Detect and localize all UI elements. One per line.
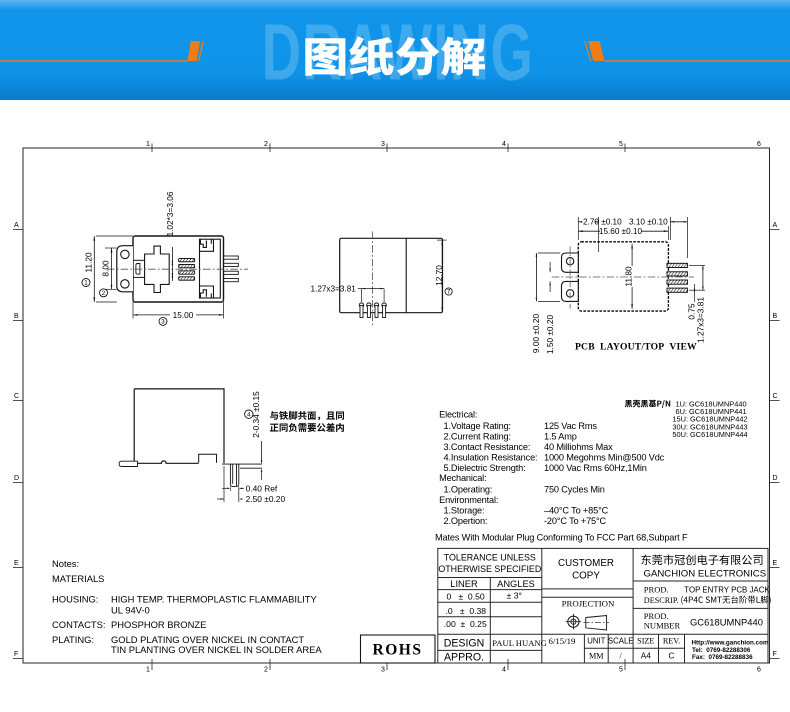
svg-text:PCB LAYOUT/TOP VIEW: PCB LAYOUT/TOP VIEW: [575, 342, 697, 353]
svg-text:NUMBER: NUMBER: [644, 621, 681, 631]
svg-text:E: E: [773, 560, 778, 567]
svg-text:PLATING:: PLATING:: [52, 634, 94, 645]
svg-text:-20°C To +75°C: -20°C To +75°C: [544, 516, 607, 526]
svg-text:TOP ENTRY PCB JACK: TOP ENTRY PCB JACK: [684, 585, 770, 594]
svg-text:1000 Vac Rms 60Hz,1Min: 1000 Vac Rms 60Hz,1Min: [544, 463, 647, 473]
svg-text:GC618UMNP440: GC618UMNP440: [690, 617, 763, 628]
svg-text:1.Storage:: 1.Storage:: [444, 506, 485, 516]
svg-text:0.40 Ref: 0.40 Ref: [246, 483, 278, 493]
svg-text:COPY: COPY: [572, 570, 600, 581]
svg-text:F: F: [773, 651, 777, 658]
svg-text:Mates With Modular Plug Confor: Mates With Modular Plug Conforming To FC…: [435, 533, 688, 543]
svg-text:1.50 ±0.20: 1.50 ±0.20: [545, 315, 555, 355]
svg-text:2: 2: [102, 290, 106, 297]
svg-text:2.Opertion:: 2.Opertion:: [444, 516, 488, 526]
svg-text:–40°C To +85°C: –40°C To +85°C: [544, 506, 609, 516]
svg-text:CUSTOMER: CUSTOMER: [558, 558, 614, 569]
svg-text:Electrical:: Electrical:: [439, 409, 477, 419]
svg-text:PHOSPHOR BRONZE: PHOSPHOR BRONZE: [111, 619, 206, 630]
svg-text:C: C: [14, 393, 19, 400]
svg-text:Fax: 0769-82288836: Fax: 0769-82288836: [692, 654, 753, 661]
svg-text:MATERIALS: MATERIALS: [52, 573, 104, 584]
svg-text:/: /: [620, 651, 623, 660]
svg-text:1.02*3=3.06: 1.02*3=3.06: [165, 191, 175, 236]
svg-text:5: 5: [619, 667, 623, 674]
svg-text:DESIGN: DESIGN: [444, 637, 485, 649]
svg-text:D: D: [773, 475, 778, 482]
svg-text:UL 94V-0: UL 94V-0: [111, 605, 150, 616]
svg-text:SCALE: SCALE: [608, 637, 634, 646]
svg-text:1: 1: [146, 667, 150, 674]
svg-text:6: 6: [757, 141, 761, 148]
svg-text:D: D: [14, 475, 19, 482]
svg-text:1.5 Amp: 1.5 Amp: [544, 432, 577, 442]
svg-text:TIN PLANTING OVER NICKEL IN SO: TIN PLANTING OVER NICKEL IN SOLDER AREA: [111, 644, 322, 655]
svg-text:PROJECTION: PROJECTION: [562, 598, 615, 608]
svg-text:B: B: [14, 313, 19, 320]
svg-text:Http://www.ganchion.com: Http://www.ganchion.com: [692, 640, 769, 647]
svg-text:REV.: REV.: [663, 637, 680, 646]
svg-text:4: 4: [502, 141, 506, 148]
svg-text:PROD.: PROD.: [644, 585, 669, 595]
svg-text:F: F: [14, 651, 18, 658]
svg-text:1.27x3=3.81: 1.27x3=3.81: [695, 297, 705, 343]
svg-text:8.00: 8.00: [100, 260, 110, 277]
svg-text:11.20: 11.20: [83, 252, 93, 273]
svg-text:PROD.: PROD.: [644, 611, 669, 621]
svg-text:2.Current Rating:: 2.Current Rating:: [444, 432, 511, 442]
svg-text:1.Operating:: 1.Operating:: [444, 485, 493, 495]
svg-text:40 Milliohms Max: 40 Milliohms Max: [544, 442, 613, 452]
svg-text:2: 2: [264, 141, 268, 148]
svg-text:Notes:: Notes:: [52, 558, 79, 569]
svg-text:.0 ± 0.38: .0 ± 0.38: [446, 606, 487, 616]
svg-text:3.10 ±0.10: 3.10 ±0.10: [629, 218, 668, 227]
svg-text:6/15/19: 6/15/19: [549, 636, 576, 646]
svg-text:5: 5: [619, 141, 623, 148]
svg-text:12.70: 12.70: [434, 265, 444, 286]
svg-text:HOUSING:: HOUSING:: [52, 594, 98, 605]
svg-text:DESCRIP.: DESCRIP.: [644, 596, 679, 605]
svg-text:5.Dielectric Strength:: 5.Dielectric Strength:: [444, 463, 526, 473]
svg-text:Mechanical:: Mechanical:: [439, 473, 486, 483]
svg-text:15.60 ±0.10: 15.60 ±0.10: [599, 227, 643, 236]
svg-text:11.80: 11.80: [624, 266, 634, 287]
svg-text:15.00: 15.00: [173, 310, 194, 320]
svg-text:CONTACTS:: CONTACTS:: [52, 619, 105, 630]
svg-text:OTHERWISE SPECIFIED: OTHERWISE SPECIFIED: [438, 564, 541, 574]
svg-text:ANGLES: ANGLES: [497, 579, 535, 589]
svg-text:A: A: [773, 222, 778, 229]
svg-text:A: A: [14, 222, 19, 229]
svg-text:9.00 ±0.20: 9.00 ±0.20: [531, 314, 541, 354]
svg-text:SIZE: SIZE: [637, 637, 654, 646]
svg-text:1.27x3=3.81: 1.27x3=3.81: [311, 285, 357, 294]
svg-text:1.Voltage Rating:: 1.Voltage Rating:: [444, 421, 511, 431]
svg-text:Environmental:: Environmental:: [439, 495, 498, 505]
svg-text:GANCHION ELECTRONICS: GANCHION ELECTRONICS: [644, 569, 767, 580]
svg-text:MM: MM: [589, 651, 604, 660]
svg-text:50U: GC618UMNP444: 50U: GC618UMNP444: [672, 430, 747, 439]
svg-text:ROHS: ROHS: [373, 642, 423, 659]
svg-text:LINER: LINER: [450, 579, 478, 589]
svg-text:1: 1: [84, 280, 88, 287]
svg-text:6: 6: [757, 667, 761, 674]
svg-text:B: B: [773, 313, 778, 320]
svg-text:4: 4: [247, 411, 251, 418]
svg-text:3: 3: [161, 319, 165, 326]
svg-text:TOLERANCE UNLESS: TOLERANCE UNLESS: [444, 553, 536, 563]
svg-text:3.Contact Resistance:: 3.Contact Resistance:: [444, 442, 531, 452]
svg-text:UNIT: UNIT: [587, 637, 605, 646]
svg-text:7: 7: [447, 289, 451, 296]
svg-text:1000 Megohms Min@500 Vdc: 1000 Megohms Min@500 Vdc: [544, 453, 665, 463]
svg-text:3: 3: [381, 141, 385, 148]
svg-text:2: 2: [264, 667, 268, 674]
svg-text:E: E: [14, 560, 19, 567]
svg-text:C: C: [773, 393, 778, 400]
svg-text:APPRO.: APPRO.: [444, 651, 484, 663]
svg-text:125 Vac Rms: 125 Vac Rms: [544, 421, 597, 431]
svg-text:HIGH TEMP. THERMOPLASTIC FLAMM: HIGH TEMP. THERMOPLASTIC FLAMMABILITY: [111, 594, 318, 605]
svg-text:750 Cycles Min: 750 Cycles Min: [544, 485, 605, 495]
svg-text:C: C: [669, 651, 675, 660]
svg-text:4: 4: [502, 667, 506, 674]
svg-text:PAUL HUANG: PAUL HUANG: [492, 638, 547, 648]
svg-text:.00 ± 0.25: .00 ± 0.25: [444, 619, 487, 629]
svg-text:2.50 ±0.20: 2.50 ±0.20: [246, 494, 286, 504]
svg-text:± 3°: ± 3°: [507, 591, 522, 601]
svg-text:A4: A4: [641, 651, 651, 660]
svg-text:1: 1: [146, 141, 150, 148]
svg-text:2.70 ±0.10: 2.70 ±0.10: [583, 218, 622, 227]
svg-text:3: 3: [381, 667, 385, 674]
svg-text:0 ± 0.50: 0 ± 0.50: [447, 591, 485, 601]
svg-text:4.Insulation Resistance:: 4.Insulation Resistance:: [444, 453, 538, 463]
